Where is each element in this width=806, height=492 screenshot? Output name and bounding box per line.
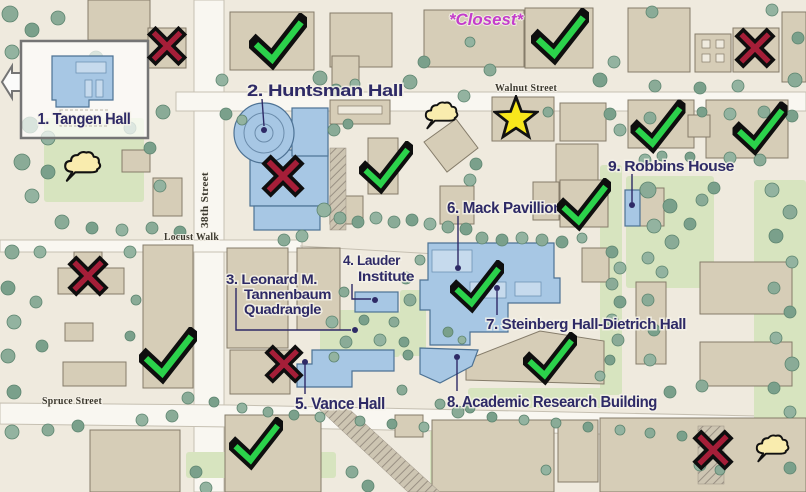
x-icon [76,264,100,288]
label-tannenbaum-line2: Tannenbaum [244,286,331,302]
x-icon [273,353,295,375]
label-tangen-hall: 1. Tangen Hall [38,111,131,128]
street-label-spruce: Spruce Street [42,395,102,407]
label-tannenbaum-line1: 3. Leonard M. [226,271,317,287]
label-lauder-line1: 4. Lauder [343,252,401,268]
label-steinberg-dietrich: 7. Steinberg Hall-Dietrich Hall [486,317,686,333]
street-label-38th: 38th Street [199,172,211,228]
label-vance-hall: 5. Vance Hall [295,395,385,413]
street-label-locust: Locust Walk [164,231,220,243]
x-icon [271,164,296,189]
closest-note: *Closest* [449,10,524,29]
label-huntsman-hall: 2. Huntsman Hall [247,81,403,100]
label-mack-pavillion: 6. Mack Pavillion [447,200,562,217]
x-icon [156,35,179,58]
campus-map: Walnut Street 38th Street Locust Walk Sp… [0,0,806,492]
label-academic-research: 8. Academic Research Building [447,394,657,411]
label-tannenbaum-line3: Quadrangle [244,301,322,317]
inset-callout: 1. Tangen Hall [2,41,148,138]
x-icon [701,438,725,462]
label-lauder-line2: Institute [358,268,415,284]
building-tangen-hall [52,56,113,107]
label-robbins-house: 9. Robbins House [608,158,734,175]
street-label-walnut: Walnut Street [495,82,557,94]
x-icon [743,36,767,60]
